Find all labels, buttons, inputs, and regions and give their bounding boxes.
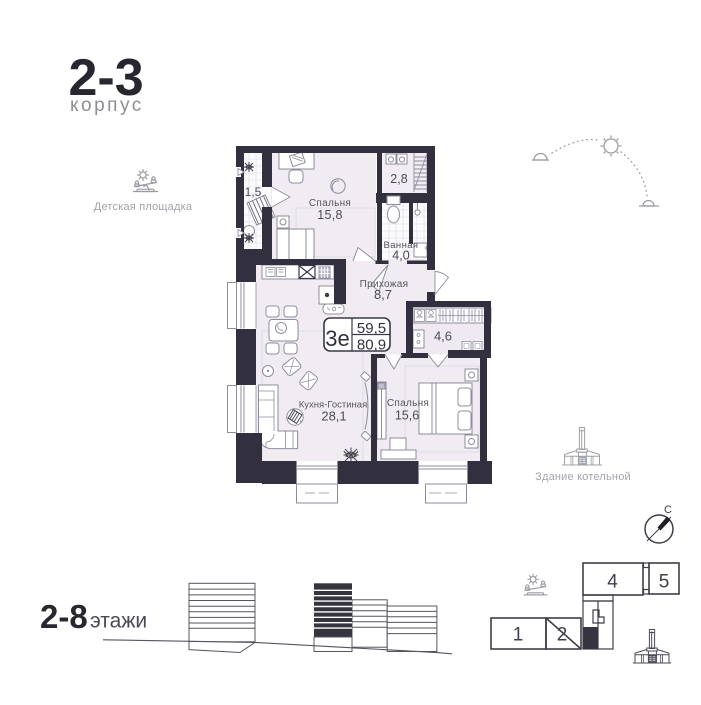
svg-text:2: 2 bbox=[557, 625, 568, 646]
svg-text:15,8: 15,8 bbox=[317, 208, 343, 222]
svg-text:этажи: этажи bbox=[90, 610, 147, 633]
svg-text:3е: 3е bbox=[325, 326, 349, 351]
svg-text:4: 4 bbox=[607, 572, 618, 593]
svg-text:Спальня: Спальня bbox=[387, 398, 429, 409]
svg-text:59,5: 59,5 bbox=[357, 320, 386, 337]
svg-text:2-8: 2-8 bbox=[40, 598, 88, 635]
svg-text:С: С bbox=[664, 504, 672, 516]
svg-text:15,6: 15,6 bbox=[395, 409, 419, 423]
svg-text:Детская площадка: Детская площадка bbox=[94, 201, 193, 213]
svg-text:Здание котельной: Здание котельной bbox=[535, 471, 631, 483]
svg-text:корпус: корпус bbox=[70, 95, 144, 116]
svg-text:2,8: 2,8 bbox=[390, 172, 407, 186]
svg-text:4,0: 4,0 bbox=[392, 249, 409, 263]
svg-text:1,5: 1,5 bbox=[245, 185, 262, 199]
svg-text:4,6: 4,6 bbox=[434, 329, 452, 344]
svg-text:80,9: 80,9 bbox=[357, 337, 386, 354]
svg-text:5: 5 bbox=[659, 572, 670, 593]
svg-text:28,1: 28,1 bbox=[321, 409, 346, 424]
svg-text:8,7: 8,7 bbox=[374, 287, 392, 302]
svg-text:1: 1 bbox=[513, 625, 524, 646]
